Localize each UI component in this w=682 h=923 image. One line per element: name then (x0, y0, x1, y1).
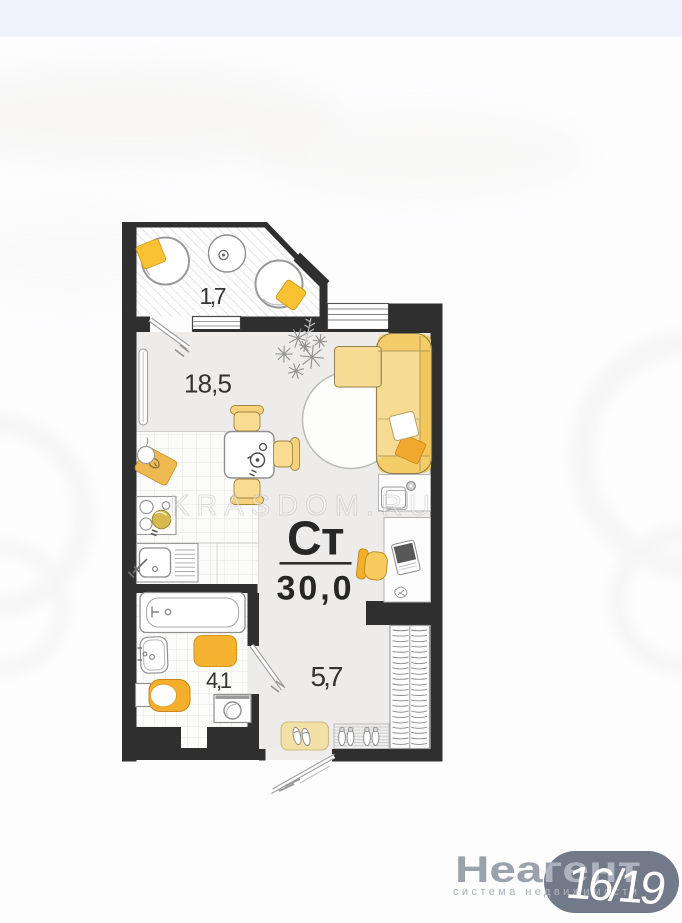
svg-text:30,0: 30,0 (277, 570, 352, 608)
svg-text:18,5: 18,5 (184, 369, 232, 399)
svg-text:16/19: 16/19 (563, 856, 670, 914)
svg-text:4,1: 4,1 (206, 668, 232, 693)
svg-text:5,7: 5,7 (311, 661, 344, 692)
svg-text:1,7: 1,7 (200, 283, 227, 309)
